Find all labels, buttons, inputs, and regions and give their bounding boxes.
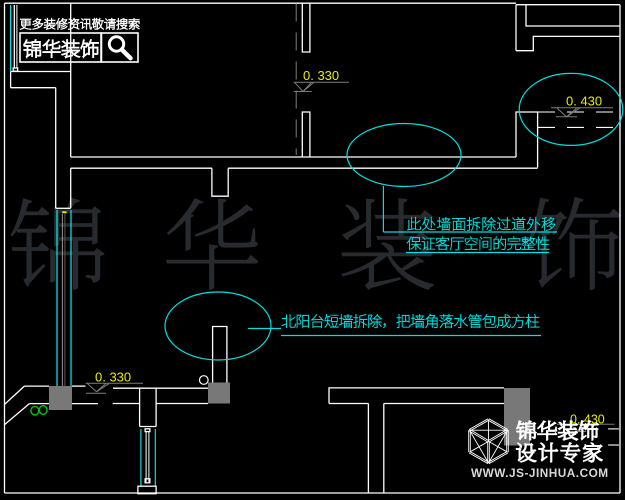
svg-text:0. 330: 0. 330	[95, 370, 131, 385]
svg-text:0. 430: 0. 430	[566, 94, 602, 109]
svg-text:0. 330: 0. 330	[303, 68, 339, 83]
svg-text:WWW.JS-JINHUA.COM: WWW.JS-JINHUA.COM	[471, 466, 609, 480]
